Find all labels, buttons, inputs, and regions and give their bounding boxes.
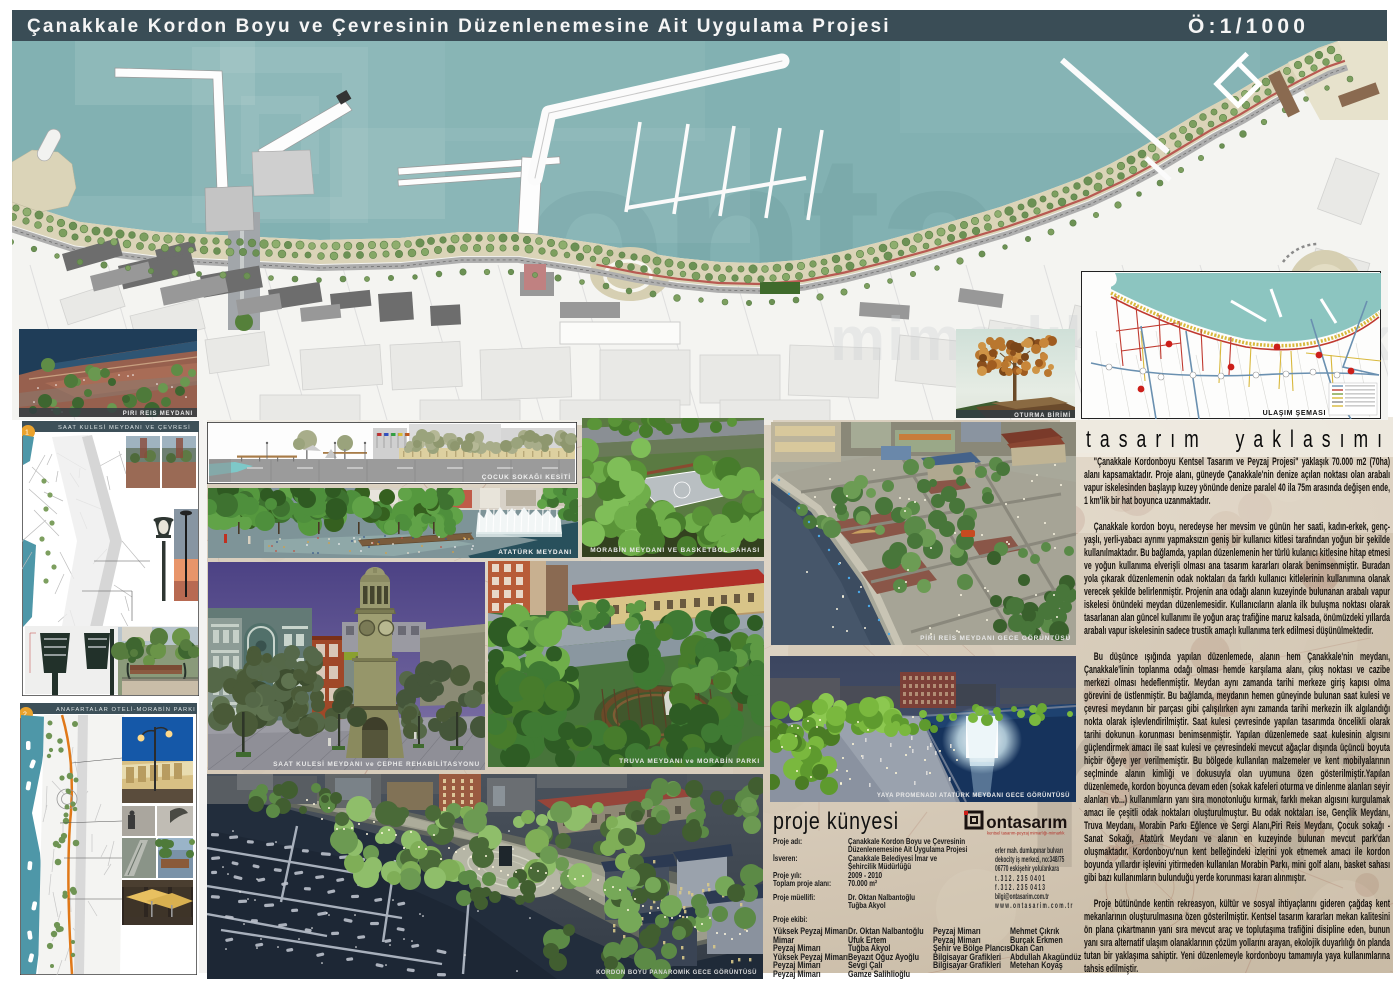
svg-text:MORABİN MEYDANI VE BASKETBOL S: MORABİN MEYDANI VE BASKETBOL SAHASI: [590, 546, 760, 554]
svg-text:ANAFARTALAR OTELİ-MORABİN PARK: ANAFARTALAR OTELİ-MORABİN PARKI: [56, 706, 196, 713]
svg-text:ÇOCUK SOKAĞI KESİTİ: ÇOCUK SOKAĞI KESİTİ: [482, 472, 571, 481]
svg-text:KORDON BOYU PANAROMİK GECE GÖR: KORDON BOYU PANAROMİK GECE GÖRÜNTÜSÜ: [596, 969, 757, 976]
svg-text:TRUVA MEYDANI ve MORABİN PARKI: TRUVA MEYDANI ve MORABİN PARKI: [619, 757, 760, 765]
svg-text:SAAT KULESİ MEYDANI ve CEPHE R: SAAT KULESİ MEYDANI ve CEPHE REHABİLİTAS…: [273, 760, 480, 768]
svg-text:YAYA PROMENADI ATATÜRK MEYDANI: YAYA PROMENADI ATATÜRK MEYDANI GECE GÖRÜ…: [877, 792, 1070, 799]
svg-text:ontasarım: ontasarım: [986, 812, 1067, 832]
svg-text:1: 1: [25, 430, 29, 437]
svg-text:SAAT KULESİ MEYDANI VE ÇEVRESİ: SAAT KULESİ MEYDANI VE ÇEVRESİ: [58, 424, 191, 431]
svg-text:ULAŞIM ŞEMASI: ULAŞIM ŞEMASI: [1263, 410, 1326, 417]
svg-text:kentsel tasarım-peyzaj mimarlı: kentsel tasarım-peyzaj mimarlığı-mimarlı…: [987, 831, 1065, 836]
svg-text:PIRI REIS MEYDANI: PIRI REIS MEYDANI: [123, 411, 193, 417]
svg-text:ATATÜRK MEYDANI: ATATÜRK MEYDANI: [498, 547, 572, 556]
svg-text:OTURMA BİRİMİ: OTURMA BİRİMİ: [1014, 412, 1071, 418]
svg-text:PİRİ REİS MEYDANI GECE GÖRÜNTÜ: PİRİ REİS MEYDANI GECE GÖRÜNTÜSÜ: [920, 633, 1071, 642]
